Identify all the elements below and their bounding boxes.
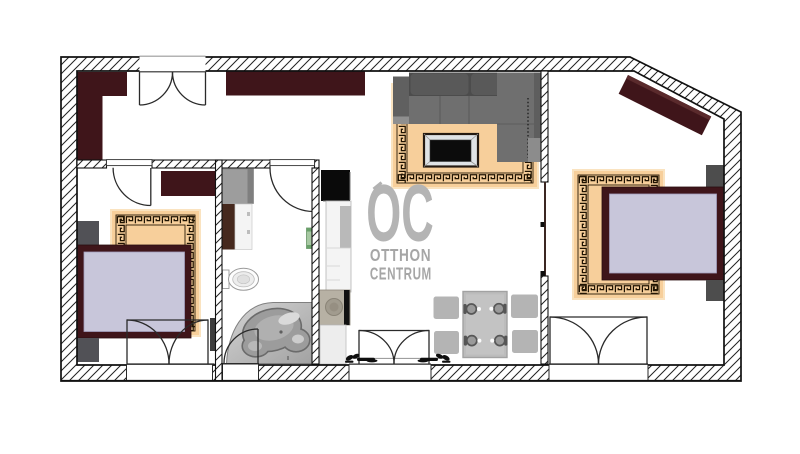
- svg-text:CENTRUM: CENTRUM: [370, 265, 432, 284]
- svg-text:OC: OC: [366, 168, 433, 258]
- svg-text:OTTHON: OTTHON: [370, 247, 431, 266]
